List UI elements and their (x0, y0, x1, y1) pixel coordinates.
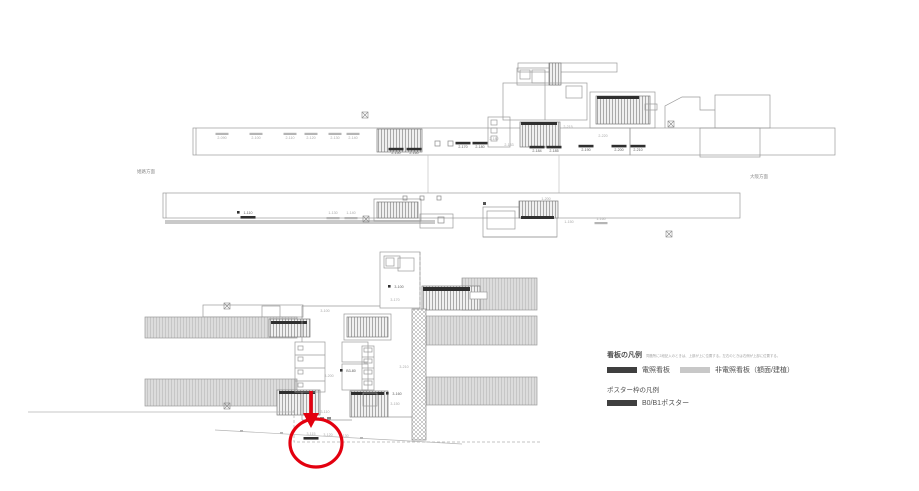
bottom-plan-linework (28, 252, 540, 444)
svg-text:1-140: 1-140 (346, 211, 355, 215)
direction-label-left: 姫路方面 (137, 169, 155, 175)
svg-text:2-182: 2-182 (489, 137, 498, 141)
svg-text:2-220: 2-220 (598, 134, 607, 138)
svg-text:1-200: 1-200 (541, 197, 550, 201)
svg-text:2-183: 2-183 (504, 143, 513, 147)
svg-text:1-130: 1-130 (328, 211, 337, 215)
escalator-hatch (596, 96, 650, 124)
direction-label-right: 大阪方面 (750, 174, 768, 180)
arrow-shaft (309, 391, 313, 415)
wall-crosshatch (412, 309, 426, 440)
plan-drawing: 2-0902-1002-1102-1202-1302-1402-1502-160… (0, 0, 919, 491)
legend-item-poster: B0/B1ポスター (607, 398, 689, 408)
svg-text:2-185: 2-185 (549, 149, 558, 153)
svg-text:3-210: 3-210 (399, 365, 408, 369)
platform-band (426, 377, 537, 405)
legend-note: 同箇所に2段記入のときは、上部が上に位置する。左右のときは右側が上部に位置する。 (646, 353, 780, 358)
non-illuminated-sign-swatch (680, 367, 710, 373)
escalator-hatch (519, 201, 558, 218)
svg-text:1-110: 1-110 (244, 211, 253, 215)
escalator-hatch (520, 122, 560, 147)
svg-text:1-150: 1-150 (564, 220, 573, 224)
svg-text:2-100: 2-100 (251, 136, 260, 140)
svg-text:B3-80: B3-80 (346, 369, 356, 373)
svg-text:3-110: 3-110 (321, 410, 330, 414)
svg-text:2-120: 2-120 (306, 136, 315, 140)
svg-text:2-180: 2-180 (475, 145, 484, 149)
svg-text:2-160: 2-160 (409, 151, 418, 155)
crossed-box-icon (362, 112, 368, 118)
legend: 看板の凡例 同箇所に2段記入のときは、上部が上に位置する。左右のときは右側が上部… (607, 350, 907, 408)
restroom-block (295, 342, 325, 392)
svg-text:2-090: 2-090 (217, 136, 226, 140)
svg-text:3-200: 3-200 (324, 374, 333, 378)
middle-plan-linework (163, 155, 740, 237)
crossed-box-icon (666, 231, 672, 237)
platform-band (426, 316, 537, 345)
station-plan-sheet: 2-0902-1002-1102-1202-1302-1402-1502-160… (0, 0, 919, 491)
illuminated-sign-swatch (607, 367, 637, 373)
crossed-box-icon (668, 121, 674, 127)
svg-text:2-170: 2-170 (458, 145, 467, 149)
svg-text:3-115: 3-115 (307, 432, 316, 436)
top-plan-linework (193, 63, 835, 157)
svg-text:2-215: 2-215 (563, 125, 572, 129)
legend-signboard-heading: 看板の凡例 (607, 350, 642, 360)
legend-item-non-illuminated: 非電照看板（額面/建植） (680, 365, 794, 375)
svg-text:2-184: 2-184 (532, 149, 541, 153)
svg-text:2-140: 2-140 (348, 136, 357, 140)
svg-text:3-100: 3-100 (320, 309, 329, 313)
stairs-hatch (347, 317, 388, 337)
svg-text:2-190: 2-190 (581, 148, 590, 152)
svg-text:3-150: 3-150 (390, 402, 399, 406)
svg-text:3-100: 3-100 (394, 285, 403, 289)
svg-text:3-160: 3-160 (392, 392, 401, 396)
escalator-hatch (377, 202, 418, 218)
svg-text:2-130: 2-130 (330, 136, 339, 140)
svg-text:2-110: 2-110 (286, 136, 295, 140)
svg-text:1-160: 1-160 (596, 217, 605, 221)
svg-text:3-120: 3-120 (323, 433, 332, 437)
highlight-circle (290, 419, 342, 467)
svg-text:2-210: 2-210 (633, 148, 642, 152)
crossed-box-icon (224, 303, 230, 309)
svg-text:2-200: 2-200 (614, 148, 623, 152)
top-plan-sign-labels: 2-0902-1002-1102-1202-1302-1402-1502-160… (216, 125, 646, 155)
legend-item-illuminated: 電照看板 (607, 365, 670, 375)
poster-frame-swatch (607, 400, 637, 406)
svg-text:2-150: 2-150 (391, 151, 400, 155)
svg-text:3-170: 3-170 (390, 298, 399, 302)
platform-band (145, 379, 297, 406)
legend-poster-heading: ポスター枠の凡例 (607, 384, 907, 394)
